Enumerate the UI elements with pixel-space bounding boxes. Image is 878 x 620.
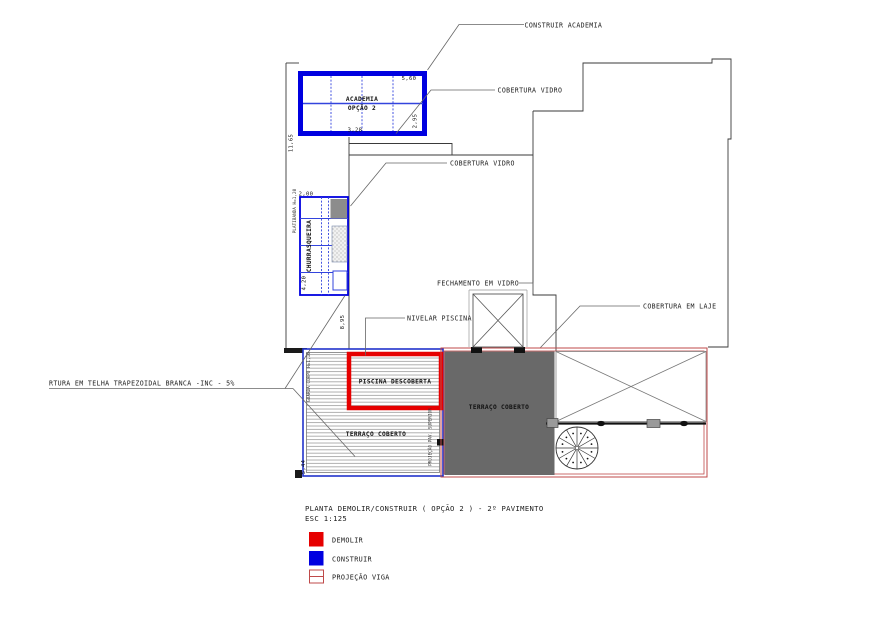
column-marker (437, 439, 444, 446)
guardrail-note: GUARDA CORPO H=1,10 (306, 352, 311, 402)
sink-fixture (333, 271, 347, 290)
plan-scale: ESC 1:125 (305, 514, 347, 523)
legend: DEMOLIR CONSTRUIR PROJEÇÃO VIGA (309, 532, 390, 583)
academia-label: ACADEMIA (346, 96, 378, 103)
dim-academia-width: 5,60 (402, 76, 417, 82)
glass-enclosure (469, 290, 527, 347)
annotation-telha: RTURA EM TELHA TRAPEZOIDAL BRANCA -INC -… (49, 380, 235, 388)
churrasqueira-room: CHURRASQUEIRA 2,00 4,20 PLATIBANDA H=1,2… (292, 188, 348, 329)
dim-academia-height: 2,95 (413, 114, 419, 129)
annotation-nivelar-piscina: NIVELAR PISCINA (407, 315, 472, 323)
legend-swatch-construir (309, 551, 324, 566)
floor-plan-drawing: PISCINA DESCOBERTA TERRAÇO COBERTO GUARD… (0, 0, 878, 620)
title-block: PLANTA DEMOLIR/CONSTRUIR ( OPÇÃO 2 ) - 2… (305, 504, 544, 523)
annotation-cobertura-vidro-mid: COBERTURA VIDRO (450, 160, 515, 168)
glass-cover-panel (331, 199, 348, 219)
terrace-right-label: TERRAÇO COBERTO (469, 404, 529, 411)
annotation-cobertura-laje: COBERTURA EM LAJE (643, 303, 716, 311)
legend-swatch-projecao-viga (310, 570, 324, 583)
annotation-construir-academia: CONSTRUIR ACADEMIA (525, 22, 603, 30)
academia-room: ACADEMIA OPÇÃO 2 5,60 3,28 2,95 11,65 (289, 74, 425, 153)
annotation-fechamento-vidro: FECHAMENTO EM VIDRO (437, 280, 519, 288)
upper-floor-projection-note: PROJEÇÃO PAV. SUPERIOR (428, 408, 433, 466)
parapet-note: PLATIBANDA H=1,20 (292, 188, 297, 233)
floor-plan-canvas: PISCINA DESCOBERTA TERRAÇO COBERTO GUARD… (0, 0, 878, 620)
annotation-cobertura-vidro-top: COBERTURA VIDRO (498, 87, 563, 95)
dim-academia-span: 3,28 (348, 128, 363, 134)
terrace-right-slab (445, 352, 555, 476)
terrace-left-label: TERRAÇO COBERTO (346, 431, 406, 438)
churrasqueira-label: CHURRASQUEIRA (306, 220, 313, 272)
terrace-left: PISCINA DESCOBERTA TERRAÇO COBERTO GUARD… (301, 349, 444, 476)
academia-option-label: OPÇÃO 2 (348, 103, 376, 112)
spiral-stair (556, 427, 598, 469)
dim-churrasqueira-height: 4,20 (302, 276, 308, 291)
plan-title: PLANTA DEMOLIR/CONSTRUIR ( OPÇÃO 2 ) - 2… (305, 504, 544, 513)
dim-corridor: 8,95 (340, 315, 346, 330)
column-marker (514, 347, 525, 353)
dim-churrasqueira-width: 2,00 (299, 192, 314, 198)
dim-left-wall: 11,65 (289, 134, 295, 152)
terrace-right-block: TERRAÇO COBERTO (441, 347, 707, 477)
legend-swatch-demolir (309, 532, 324, 547)
legend-label-demolir: DEMOLIR (332, 537, 364, 545)
column-marker (471, 347, 482, 353)
dim-terrace-height: 5,44 (301, 459, 307, 474)
pool-label: PISCINA DESCOBERTA (359, 379, 431, 386)
legend-label-construir: CONSTRUIR (332, 556, 373, 564)
legend-label-projecao-viga: PROJEÇÃO VIGA (332, 573, 390, 582)
grill-counter (332, 226, 347, 262)
